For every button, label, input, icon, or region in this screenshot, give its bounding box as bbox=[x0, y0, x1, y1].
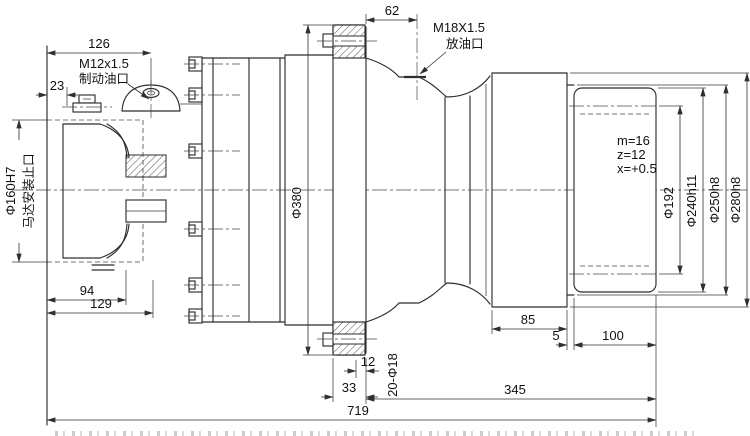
cropped-text-fragment bbox=[55, 431, 700, 436]
collar-dia-label: Φ250h8 bbox=[707, 177, 722, 224]
callout-bolt-holes: 20-Φ18 bbox=[385, 353, 400, 397]
housing-bolt bbox=[184, 88, 240, 102]
pitch-dia-label: Φ192 bbox=[661, 187, 676, 219]
dim-23-text: 23 bbox=[50, 78, 64, 93]
motor-cavity bbox=[63, 124, 129, 258]
drain-port-name-label: 放油口 bbox=[446, 36, 484, 51]
dim-phi250: Φ250h8 bbox=[707, 85, 726, 295]
drain-port bbox=[404, 14, 426, 100]
motor-spigot-dia-label: Φ160H7 bbox=[3, 167, 18, 216]
housing-bolt bbox=[184, 222, 240, 236]
hub-pilot-dia-label: Φ280h8 bbox=[728, 177, 743, 224]
dim-23: 23 bbox=[36, 78, 78, 106]
dim-phi240: Φ240h11 bbox=[684, 88, 703, 292]
housing-bolt bbox=[184, 309, 240, 323]
gearbox-section-drawing: 126 23 Φ160H7 马达安装止口 94 129 bbox=[0, 0, 750, 436]
motor-mount-section bbox=[47, 46, 202, 425]
dim-100: 100 bbox=[574, 295, 656, 427]
dim-phi160: Φ160H7 马达安装止口 bbox=[3, 120, 48, 262]
callout-drain-port: M18X1.5 放油口 bbox=[420, 20, 485, 74]
dim-100-text: 100 bbox=[602, 328, 624, 343]
dim-5-text: 5 bbox=[552, 328, 559, 343]
dim-5: 5 bbox=[552, 298, 585, 350]
dim-62-text: 62 bbox=[385, 3, 399, 18]
housing-bolt bbox=[184, 278, 240, 292]
brake-port-name-label: 制动油口 bbox=[79, 72, 129, 86]
dim-85-text: 85 bbox=[521, 312, 535, 327]
bearing-section bbox=[126, 155, 166, 222]
dim-719: 719 bbox=[47, 403, 656, 420]
dim-129-text: 129 bbox=[90, 296, 112, 311]
dim-phi192: Φ192 bbox=[661, 106, 680, 274]
gear-shift-label: x=+0.5 bbox=[617, 161, 657, 176]
dim-94: 94 bbox=[47, 270, 126, 305]
brake-port-thread-label: M12x1.5 bbox=[79, 56, 129, 71]
spline-major-dia-label: Φ240h11 bbox=[684, 175, 699, 228]
dim-345: 345 bbox=[366, 382, 656, 399]
housing-bolt bbox=[184, 57, 240, 71]
flange-dia-label: Φ380 bbox=[289, 187, 304, 219]
spline-shaft bbox=[569, 88, 661, 292]
callout-brake-port: M12x1.5 制动油口 bbox=[79, 56, 149, 99]
housing-bolt bbox=[184, 144, 240, 158]
dim-345-text: 345 bbox=[504, 382, 526, 397]
drawing-canvas: 126 23 Φ160H7 马达安装止口 94 129 bbox=[0, 0, 750, 436]
flange-bolt-top bbox=[317, 25, 377, 58]
callouts: M12x1.5 制动油口 M18X1.5 放油口 m=16 z=12 x=+0.… bbox=[79, 20, 657, 176]
dim-62: 62 bbox=[366, 3, 417, 24]
gear-module-label: m=16 bbox=[617, 133, 650, 148]
dim-33-text: 33 bbox=[342, 380, 356, 395]
bolt-holes-label: 20-Φ18 bbox=[385, 353, 400, 397]
motor-spigot-name-label: 马达安装止口 bbox=[21, 153, 36, 228]
dim-126-text: 126 bbox=[88, 36, 110, 51]
grease-fitting bbox=[62, 95, 112, 112]
gear-teeth-label: z=12 bbox=[617, 147, 646, 162]
dim-129: 129 bbox=[47, 280, 153, 318]
flange-bolt-bottom bbox=[317, 322, 377, 355]
dim-719-text: 719 bbox=[347, 403, 369, 418]
dim-12-text: 12 bbox=[361, 354, 375, 369]
dim-12: 12 bbox=[344, 354, 379, 404]
drain-port-thread-label: M18X1.5 bbox=[433, 20, 485, 35]
gearbox-taper-section bbox=[366, 14, 490, 322]
